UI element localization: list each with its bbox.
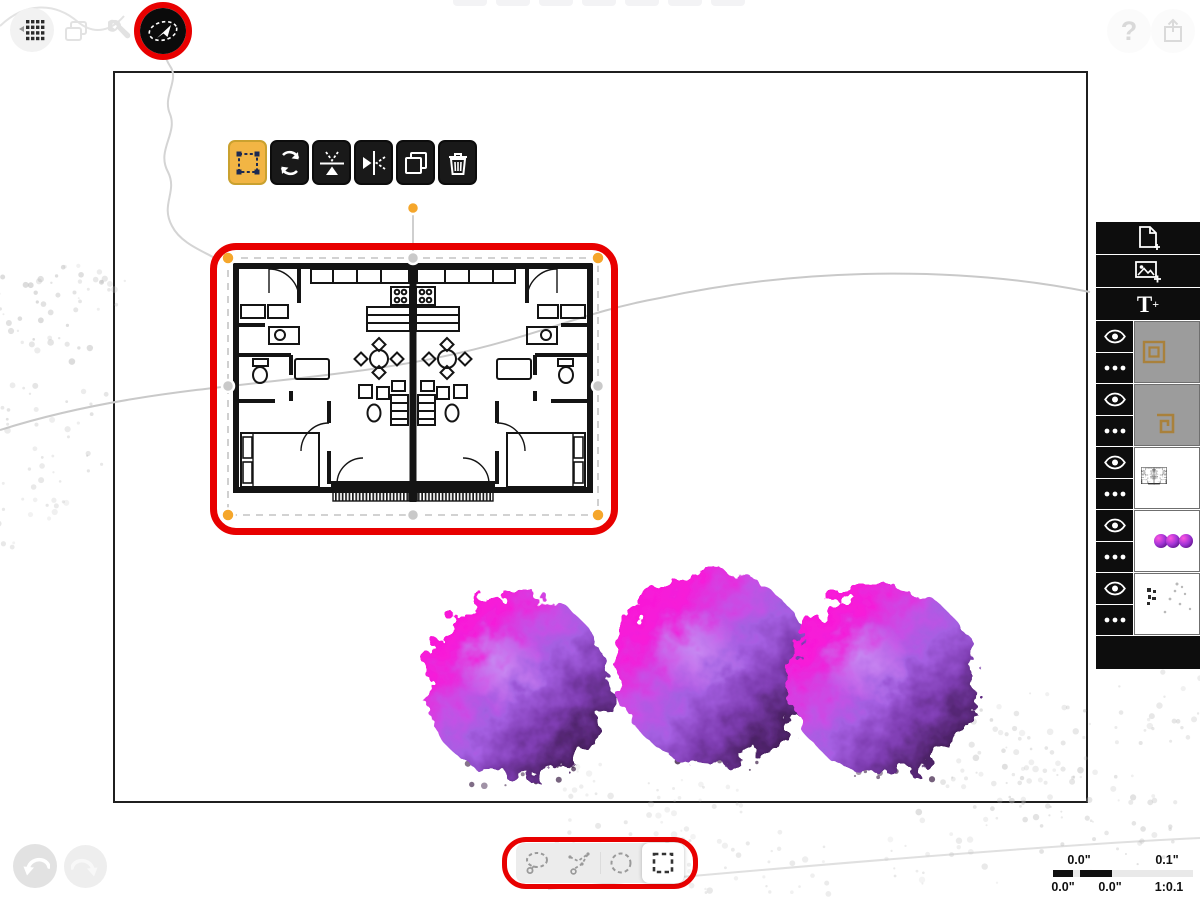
share-icon [1160,17,1186,45]
share-button[interactable] [1151,9,1195,53]
layer-row-trees [1096,510,1200,572]
ellipse-select-tool-button[interactable] [601,843,643,883]
transform-button[interactable] [228,140,267,185]
ellipsis-icon [1103,554,1127,560]
page-dash [582,0,616,6]
scale-label-top-left: 0.0" [1067,853,1090,867]
pages-button[interactable] [57,13,95,51]
add-image-icon [1134,259,1162,283]
move-tool-icon [146,16,180,46]
add-page-button[interactable] [1096,222,1200,254]
transform-icon [234,149,262,177]
flip-vertical-icon [318,149,346,177]
rotate-icon [276,149,304,177]
layer-thumbnail-trees[interactable] [1134,510,1200,572]
page-dash [711,0,745,6]
scale-segment [1080,870,1112,877]
rectangle-select-tool-button[interactable] [642,843,684,883]
eye-icon [1104,392,1126,407]
app-canvas: ? T+ [0,0,1200,900]
layer-visibility-button[interactable] [1096,447,1133,478]
eye-icon [1104,518,1126,533]
add-text-button[interactable]: T+ [1096,288,1200,320]
layer-options-button[interactable] [1096,416,1133,447]
site-sketch-mini [1135,574,1200,634]
scale-label-bottom-2: 0.0" [1098,880,1121,894]
add-text-plus: + [1152,297,1159,312]
stencil-frame-glyph [1135,322,1200,382]
layer-visibility-button[interactable] [1096,573,1133,604]
layer-row-stencil-spiral [1096,384,1200,446]
layer-visibility-button[interactable] [1096,321,1133,352]
grid-menu-icon [17,17,47,43]
page-dash [625,0,659,6]
layer-options-button[interactable] [1096,353,1133,384]
scale-label-bottom-1: 0.0" [1051,880,1074,894]
add-image-button[interactable] [1096,255,1200,287]
help-button[interactable]: ? [1107,9,1151,53]
redo-button[interactable] [64,845,107,888]
wrench-button[interactable] [103,13,141,51]
delete-button[interactable] [438,140,477,185]
wrench-icon [108,18,136,46]
layer-row-floor-plan [1096,447,1200,509]
pages-icon [62,18,90,46]
eye-icon [1104,581,1126,596]
page-dash [496,0,530,6]
scale-label-top-right: 0.1" [1155,853,1178,867]
duplicate-button[interactable] [396,140,435,185]
eye-icon [1104,455,1126,470]
trash-icon [444,149,472,177]
scale-label-ratio: 1:0.1 [1155,880,1184,894]
marquee-toolbar [516,843,684,883]
sidebar-footer [1096,636,1200,669]
layer-options-button[interactable] [1096,479,1133,510]
ellipsis-icon [1103,617,1127,623]
ellipsis-icon [1103,491,1127,497]
page-dash [668,0,702,6]
rotate-button[interactable] [270,140,309,185]
eye-icon [1104,329,1126,344]
flip-horizontal-icon [360,149,388,177]
polygon-lasso-icon [565,850,593,876]
grid-menu-button[interactable] [10,8,54,52]
scale-bar: 0.0" 0.1" 0.0" 0.0" 1:0.1 [1040,853,1196,895]
lasso-tool-button[interactable] [516,843,558,883]
undo-button[interactable] [13,844,57,888]
move-tool-button[interactable] [140,8,186,54]
scale-segment [1112,870,1193,877]
duplicate-icon [402,149,430,177]
flip-vertical-button[interactable] [312,140,351,185]
lasso-icon [523,850,551,876]
ellipse-select-icon [607,850,635,876]
layer-thumbnail-stencil-frame[interactable] [1134,321,1200,383]
scale-segment [1053,870,1073,877]
flip-horizontal-button[interactable] [354,140,393,185]
add-page-icon [1135,225,1161,251]
layers-sidebar: T+ [1096,222,1200,669]
page-dash [453,0,487,6]
undo-icon [20,851,50,881]
add-text-label: T [1137,293,1152,316]
layer-row-site-sketch [1096,573,1200,635]
layer-thumbnail-floor-plan[interactable] [1134,447,1200,509]
scale-segment [1073,870,1080,877]
layer-visibility-button[interactable] [1096,384,1133,415]
stencil-spiral-glyph [1135,385,1200,445]
layer-thumbnail-stencil-spiral[interactable] [1134,384,1200,446]
layer-options-button[interactable] [1096,542,1133,573]
selection-toolbar [228,140,477,185]
layer-thumbnail-site-sketch[interactable] [1134,573,1200,635]
annotation-rect-floor-plan [210,243,618,535]
page-dash [539,0,573,6]
rectangle-select-icon [649,850,677,876]
polygon-lasso-tool-button[interactable] [558,843,600,883]
redo-icon [71,852,101,882]
ellipsis-icon [1103,365,1127,371]
layer-options-button[interactable] [1096,605,1133,636]
help-label: ? [1121,16,1138,47]
trees-mini [1135,511,1200,571]
layer-visibility-button[interactable] [1096,510,1133,541]
layer-row-stencil-frame [1096,321,1200,383]
floor-plan-mini [1135,448,1200,508]
ellipsis-icon [1103,428,1127,434]
